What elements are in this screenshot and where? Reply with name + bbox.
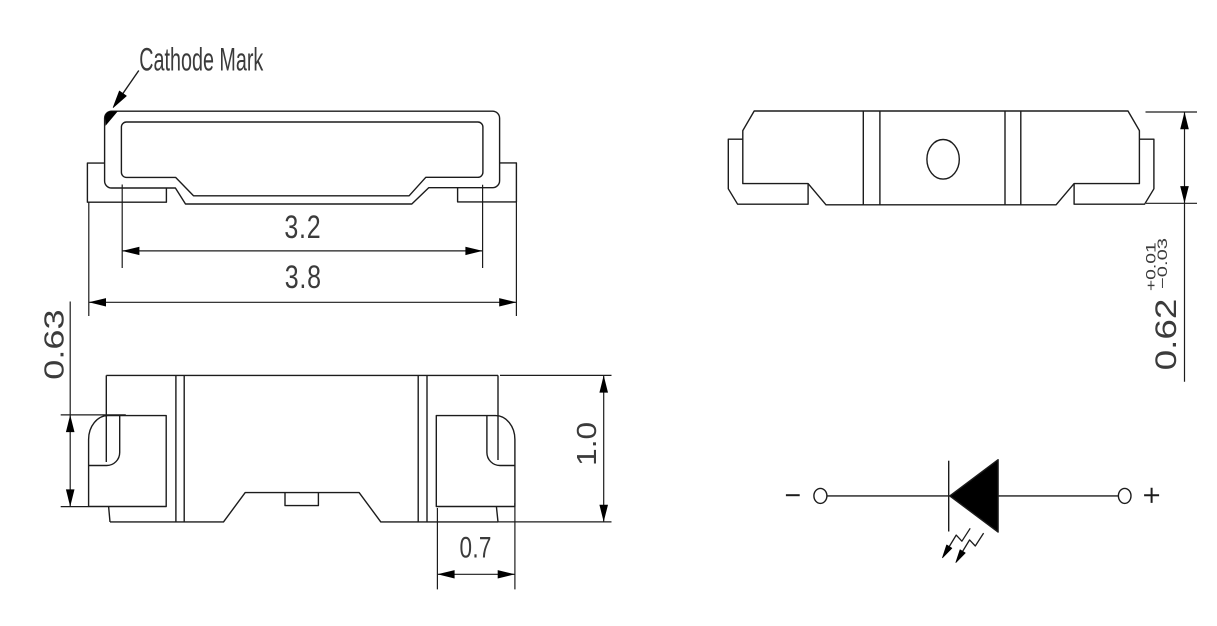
svg-text:0.62: 0.62 [1150, 299, 1183, 371]
svg-text:0.63: 0.63 [38, 309, 69, 379]
svg-text:1.0: 1.0 [572, 422, 603, 466]
svg-text:−0.03: −0.03 [1154, 238, 1170, 289]
svg-text:Cathode Mark: Cathode Mark [139, 42, 263, 78]
svg-text:3.8: 3.8 [285, 260, 322, 296]
svg-text:3.2: 3.2 [284, 210, 321, 246]
svg-text:0.7: 0.7 [460, 531, 492, 565]
